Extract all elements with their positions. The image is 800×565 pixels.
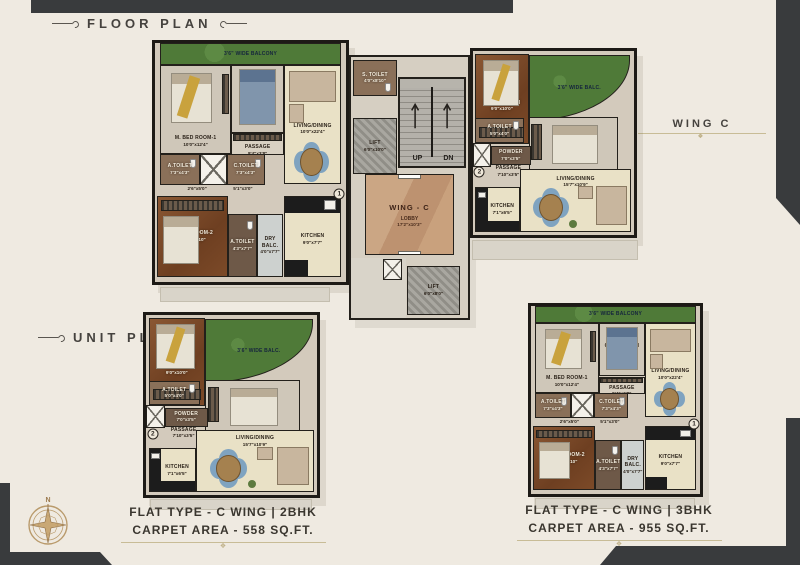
living-dining: LIVING/DINING 10'0"x22'4" [645,323,696,417]
attached-toilet-2: A.TOILET 4'3"x7'7" [228,214,258,277]
powder-room: POWDER 7'0"x3'5" [165,408,208,427]
room-label: M. BED ROOM-1 [546,375,588,382]
room-label: KITCHEN [659,454,683,461]
plant [569,220,577,228]
compass-north-label: N [45,497,50,504]
wardrobe [531,124,541,160]
hob [324,200,336,210]
room-label: LIVING/DINING [651,368,689,375]
passage: PASSAGE 8'4"x3'8" [231,133,284,156]
wing-label-rule [638,133,766,134]
rear-lift: LIFT 6'0"x8'0" [407,266,460,316]
up-arrow-icon [410,91,420,140]
wing-label: WING C [638,118,766,134]
attached-toilet: A.TOILET 7'3"x4'3" [535,393,570,417]
room-dims: 4'0"x7'7" [260,249,279,255]
wardrobe [208,387,219,422]
attached-toilet-2: A.TOILET 4'3"x7'7" [595,440,621,490]
room-dims: 5'0"x4'0" [490,131,509,137]
room-label: KITCHEN [301,233,325,240]
balcony: 3'6" WIDE BALCONY [160,43,341,65]
kitchen: KITCHEN 9'0"x7'7" [645,426,696,490]
common-toilet: C.TOILET 7'3"x4'3" [594,393,628,417]
unit-marker-2: 2 [147,428,158,439]
master-bedroom-1: M. BED ROOM-1 10'0"x12'4" [160,65,232,155]
master-bedroom-1: M. BED ROOM-1 10'0"x12'4" [535,323,598,394]
sofa [289,71,335,102]
room-dims: 7'3"x4'3" [543,406,562,412]
wing-label-text: WING C [638,118,766,130]
caption-flat-type: FLAT TYPE - C WING | 2BHK [98,505,348,519]
dn-arrow-icon [442,91,452,140]
room-dims: 7'10"x3'5" [484,172,532,178]
room-dims: 10'0"x22'4" [293,129,331,135]
duct-shaft [473,143,491,167]
staircase: UP DN [398,77,466,168]
common-toilet: C.TOILET 7'3"x4'3" [227,154,265,185]
dining-table [539,194,563,221]
room-dims: 7'0"x3'5" [177,417,196,423]
room-dims: 9'0"x10'0" [484,106,521,112]
attached-toilet: A.TOILET 7'3"x4'3" [160,154,200,185]
room-dims: 4'0"x8'10" [364,78,386,84]
passage-dim: 2'6"x5'0" [187,186,206,191]
corner-decoration-top-right [776,0,800,225]
plan-apron [472,240,638,260]
compass-rose: N [24,494,72,553]
unit-marker-1: 1 [334,188,345,199]
curved-balcony: 3'6" WIDE BALC. [529,55,630,121]
lobby-dims: 17'2"x10'3" [397,222,421,227]
passage: PASSAGE 8'4"x3'8" [599,377,645,395]
room-dims: 7'3"x4'3" [602,406,621,412]
passage: PASSAGE 7'10"x3'5" [158,427,209,439]
lobby-title: WING - C [389,203,430,212]
bed [163,216,199,264]
room-dims: 10'0"x12'4" [546,382,588,388]
unit-marker-2: 2 [474,167,485,178]
kitchen-counter [646,477,666,489]
caption-flat-type: FLAT TYPE - C WING | 3BHK [494,503,744,517]
caption-carpet-area: CARPET AREA - 955 SQ.FT. [494,521,744,535]
passage-dim: 5'1"x3'0" [233,186,252,191]
lobby: WING - C LOBBY 17'2"x10'3" [365,174,454,255]
master-bedroom-2: M. BED ROOM-2 10'0"x12'10" [157,196,228,277]
toilet-icon [513,121,519,130]
room-dims: 10'0"x22'4" [651,375,689,381]
stairs-up-label: UP [413,155,423,162]
caption-2bhk: FLAT TYPE - C WING | 2BHK CARPET AREA - … [98,505,348,543]
wardrobe [233,134,281,140]
room-dims: 9'0"x7'7" [659,461,683,467]
kitchen: KITCHEN 9'0"x7'7" [284,196,341,277]
room-dims: 7'10"x3'5" [158,433,209,439]
plant [248,480,256,488]
servant-toilet: S. TOILET 4'0"x8'10" [353,60,396,97]
unit-marker-1: 1 [689,419,700,430]
caption-3bhk: FLAT TYPE - C WING | 3BHK CARPET AREA - … [494,503,744,541]
living-dining: LIVING/DINING 15'7"x10'9" [520,169,630,232]
bed [606,327,638,370]
room-dims: 6'0"x8'0" [424,291,443,297]
room-dims: 5'0"x4'0" [165,393,184,399]
dry-balcony: DRY BALC. 4'0"x7'7" [621,440,644,490]
room-dims: 4'3"x7'7" [233,246,252,252]
kitchen: KITCHEN 7'1"x6'5" [475,187,520,232]
floor-plan-3bhk-unit: 3'6" WIDE BALCONY M. BED ROOM-1 10'0"x12… [152,40,349,285]
dining-table [216,455,241,481]
armchair [257,447,273,460]
powder-room: POWDER 7'0"x3'5" [491,146,531,165]
bed [539,442,570,479]
kitchen-counter [285,260,308,276]
children-bedroom: C.BED ROOM 8'3"x9'0" [231,65,284,133]
children-bedroom: C. BED ROOM 10'0"x8'10" [529,117,618,170]
toilet-icon [189,384,195,393]
room-label: PASSAGE [245,144,270,151]
duct-shaft [146,405,165,428]
wardrobe [600,378,643,383]
room-label: KITCHEN [490,203,514,210]
balcony: 3'6" WIDE BALCONY [535,306,696,323]
balcony-label: 3'6" WIDE BALCONY [589,311,642,318]
lobby-door [398,251,421,256]
room-label: KITCHEN [165,464,189,471]
passage-dim: 5'1"x3'0" [600,419,619,424]
armchair [650,354,663,369]
wardrobe [222,74,229,113]
room-label: DRY BALC. [622,456,643,469]
unit-plan-2bhk: M. BED ROOM 9'0"x10'0" 3'6" WIDE BALC. C… [143,312,320,498]
toilet-icon [247,221,253,230]
room-label: LIVING/DINING [236,435,274,442]
caption-carpet-area: CARPET AREA - 558 SQ.FT. [98,523,348,537]
compass-icon: N [24,494,72,548]
bed [239,69,275,125]
wing-core: S. TOILET 4'0"x8'10" LIFT 6'0"x10'0" UP … [349,55,470,320]
room-label: DRY BALC. [258,236,282,249]
lobby-door [398,174,421,179]
right-curl-arrow-icon [220,20,247,28]
room-dims: 4'0"x7'7" [623,469,642,475]
room-dims: 6'0"x10'0" [364,147,386,153]
passage-dim: 2'6"x5'0" [560,419,579,424]
living-dining: LIVING/DINING 10'0"x22'4" [284,65,341,185]
room-dims: 7'3"x4'3" [236,170,255,176]
wardrobe [161,200,224,211]
unit-plan-3bhk: 3'6" WIDE BALCONY M. BED ROOM-1 10'0"x12… [528,303,703,497]
children-bedroom: C.BED ROOM 8'3"x9'0" [599,323,645,377]
stairs-dn-label: DN [443,155,453,162]
lift: LIFT 6'0"x10'0" [353,118,396,174]
kitchen-counter [150,481,196,491]
bed [552,125,597,164]
dining-table [300,148,322,176]
floor-plan-2bhk-unit: M. BED ROOM 9'0"x10'0" 3'6" WIDE BALC. C… [470,48,637,238]
floor-plan-title: FLOOR PLAN [87,16,212,31]
bed [230,388,278,426]
caption-rule [121,542,326,543]
left-curl-arrow-icon [52,20,79,28]
hob [151,453,159,460]
dining-table [660,388,679,410]
dry-balcony: DRY BALC. 4'0"x7'7" [257,214,283,277]
balcony-label: 3'6" WIDE BALC. [558,85,601,92]
curved-balcony: 3'6" WIDE BALC. [205,319,313,384]
corner-decoration-top [31,0,513,13]
sofa [650,329,691,353]
room-label: M. BED ROOM-1 [175,135,217,142]
kitchen: KITCHEN 7'1"x6'5" [149,448,197,492]
balcony-label: 3'6" WIDE BALCONY [224,51,277,58]
sofa [596,186,626,225]
wardrobe [590,331,596,362]
hob [680,430,691,437]
room-dims: 7'0"x3'5" [501,156,520,162]
sofa [277,447,309,485]
duct-shaft [200,154,227,185]
passage: PASSAGE 7'10"x3'5" [484,165,532,177]
caption-rule [517,540,722,541]
room-dims: 10'0"x12'4" [175,142,217,148]
master-bedroom-2: M. BED ROOM-2 10'0"x12'10" [533,426,596,490]
room-dims: 9'0"x7'7" [301,240,325,246]
floor-plan-header: FLOOR PLAN [52,16,247,31]
duct-shaft [383,259,403,280]
left-curl-arrow-icon [38,334,65,342]
room-dims: 7'1"x6'5" [490,210,514,216]
armchair [289,104,303,123]
toilet-icon [612,446,618,455]
room-dims: 9'0"x10'0" [158,370,195,376]
children-bedroom: C. BED ROOM 10'0"x8'10" [205,380,300,432]
stair-divider [431,87,433,157]
room-dims: 7'1"x6'5" [165,471,189,477]
room-dims: 4'3"x7'7" [599,466,618,472]
wardrobe [536,430,592,439]
plan-apron [160,287,330,302]
armchair [578,186,593,200]
kitchen-counter [476,221,519,231]
living-dining: LIVING/DINING 15'7"x10'9" [196,430,313,492]
balcony-label: 3'6" WIDE BALC. [237,348,280,355]
room-dims: 7'3"x4'3" [170,170,189,176]
duct-shaft [571,393,595,417]
toilet-icon [385,83,391,92]
hob [478,192,486,199]
